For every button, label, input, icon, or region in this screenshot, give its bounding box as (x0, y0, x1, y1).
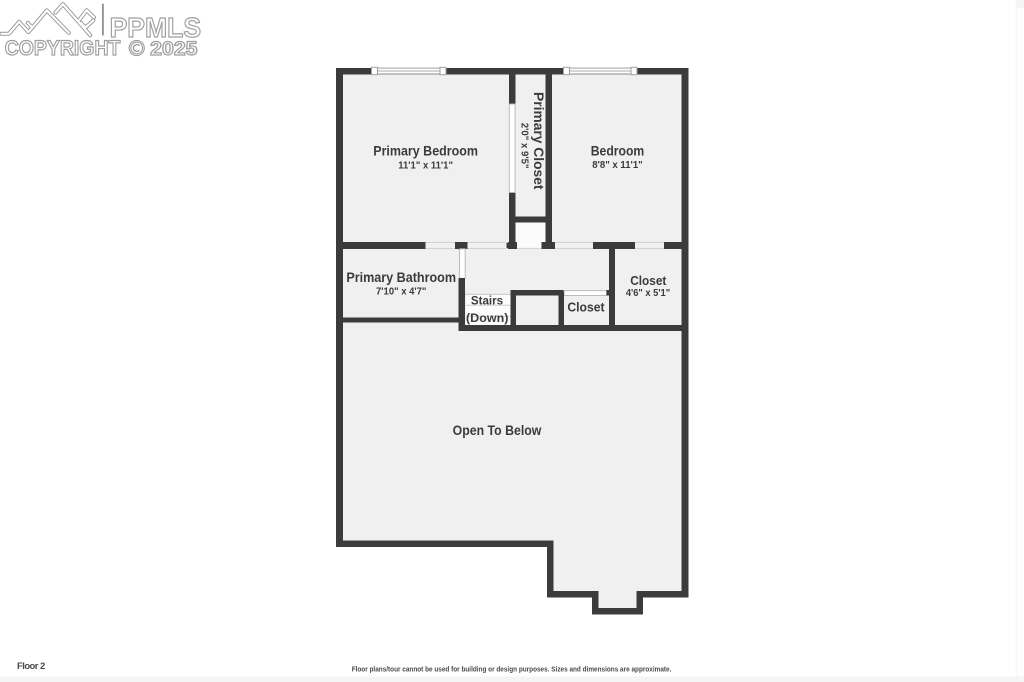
svg-text:Closet: Closet (630, 273, 667, 288)
svg-text:Open To Below: Open To Below (453, 423, 542, 438)
svg-text:7'10" x 4'7": 7'10" x 4'7" (376, 286, 426, 297)
svg-text:Stairs: Stairs (471, 294, 503, 308)
svg-text:8'8" x 11'1": 8'8" x 11'1" (592, 160, 643, 171)
svg-text:Closet: Closet (567, 300, 605, 315)
svg-text:(Down): (Down) (466, 311, 508, 325)
svg-text:COPYRIGHT: COPYRIGHT (5, 37, 121, 60)
svg-text:2025: 2025 (150, 39, 198, 60)
svg-text:Primary Bedroom: Primary Bedroom (373, 143, 478, 159)
svg-text:Primary Closet: Primary Closet (531, 92, 546, 190)
svg-text:Floor plans/tour cannot be use: Floor plans/tour cannot be used for buil… (352, 666, 672, 673)
svg-text:Floor 2: Floor 2 (17, 661, 45, 672)
svg-text:2'0" x 9'5": 2'0" x 9'5" (519, 123, 530, 169)
svg-text:Bedroom: Bedroom (591, 143, 645, 159)
svg-text:11'1" x 11'1": 11'1" x 11'1" (398, 161, 453, 172)
svg-text:Primary Bathroom: Primary Bathroom (346, 269, 456, 285)
svg-text:4'6" x 5'1": 4'6" x 5'1" (626, 288, 670, 299)
